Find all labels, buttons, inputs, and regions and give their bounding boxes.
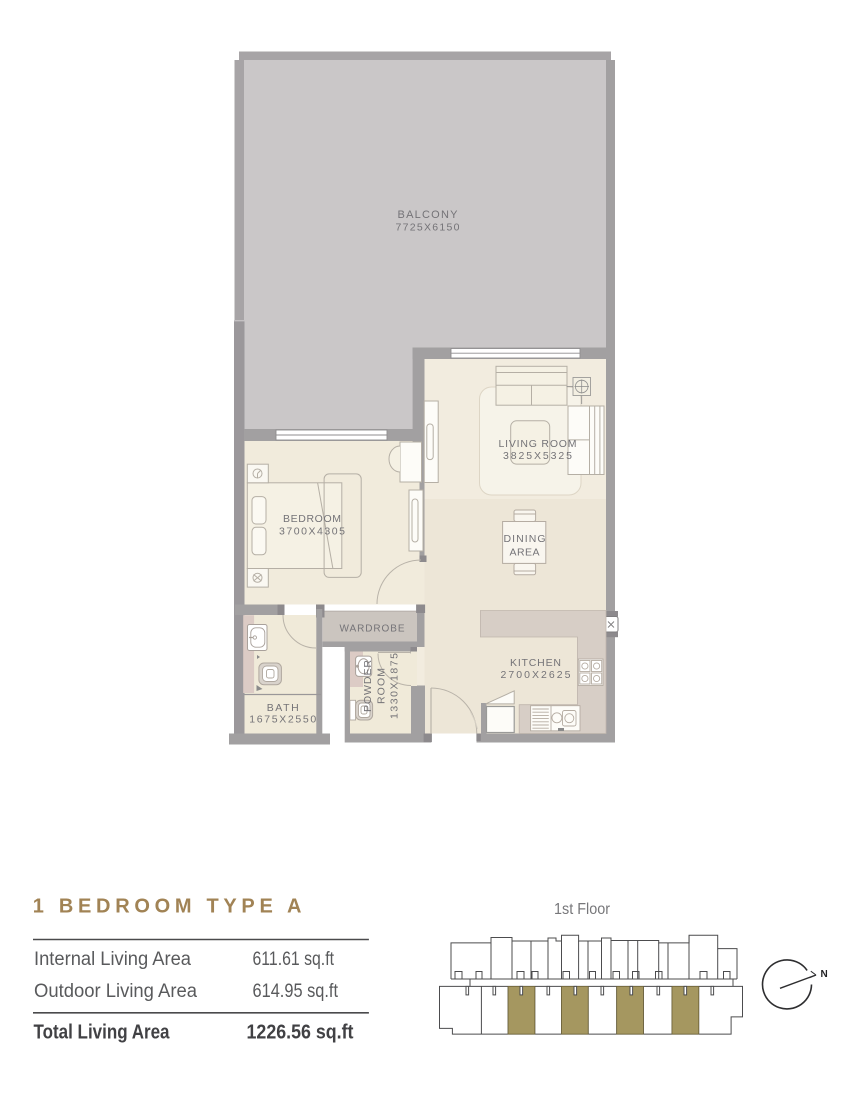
svg-text:1330X1875: 1330X1875	[389, 653, 401, 719]
svg-text:AREA: AREA	[510, 547, 540, 559]
svg-text:Outdoor Living Area: Outdoor Living Area	[34, 981, 197, 1002]
svg-text:POWDER: POWDER	[362, 660, 374, 712]
svg-text:3825X5325: 3825X5325	[503, 450, 572, 462]
svg-text:1226.56 sq.ft: 1226.56 sq.ft	[247, 1022, 354, 1044]
svg-text:Total Living Area: Total Living Area	[34, 1022, 171, 1044]
svg-text:1 BEDROOM TYPE A: 1 BEDROOM TYPE A	[33, 896, 306, 918]
svg-text:Internal Living Area: Internal Living Area	[34, 949, 191, 970]
svg-text:611.61 sq.ft: 611.61 sq.ft	[253, 949, 335, 970]
svg-text:ROOM: ROOM	[376, 668, 388, 704]
svg-text:DINING: DINING	[504, 533, 546, 545]
svg-text:BATH: BATH	[267, 702, 299, 714]
svg-text:N: N	[821, 969, 828, 980]
svg-text:2700X2625: 2700X2625	[501, 669, 571, 681]
svg-text:KITCHEN: KITCHEN	[510, 657, 561, 669]
svg-text:1675X2550: 1675X2550	[249, 714, 316, 726]
svg-text:7725X6150: 7725X6150	[396, 222, 460, 234]
svg-text:BEDROOM: BEDROOM	[283, 513, 341, 525]
svg-text:614.95 sq.ft: 614.95 sq.ft	[253, 981, 339, 1002]
svg-text:WARDROBE: WARDROBE	[340, 624, 405, 635]
svg-text:3700X4305: 3700X4305	[279, 526, 345, 538]
svg-text:1st Floor: 1st Floor	[554, 901, 611, 918]
svg-text:LIVING ROOM: LIVING ROOM	[499, 438, 577, 450]
